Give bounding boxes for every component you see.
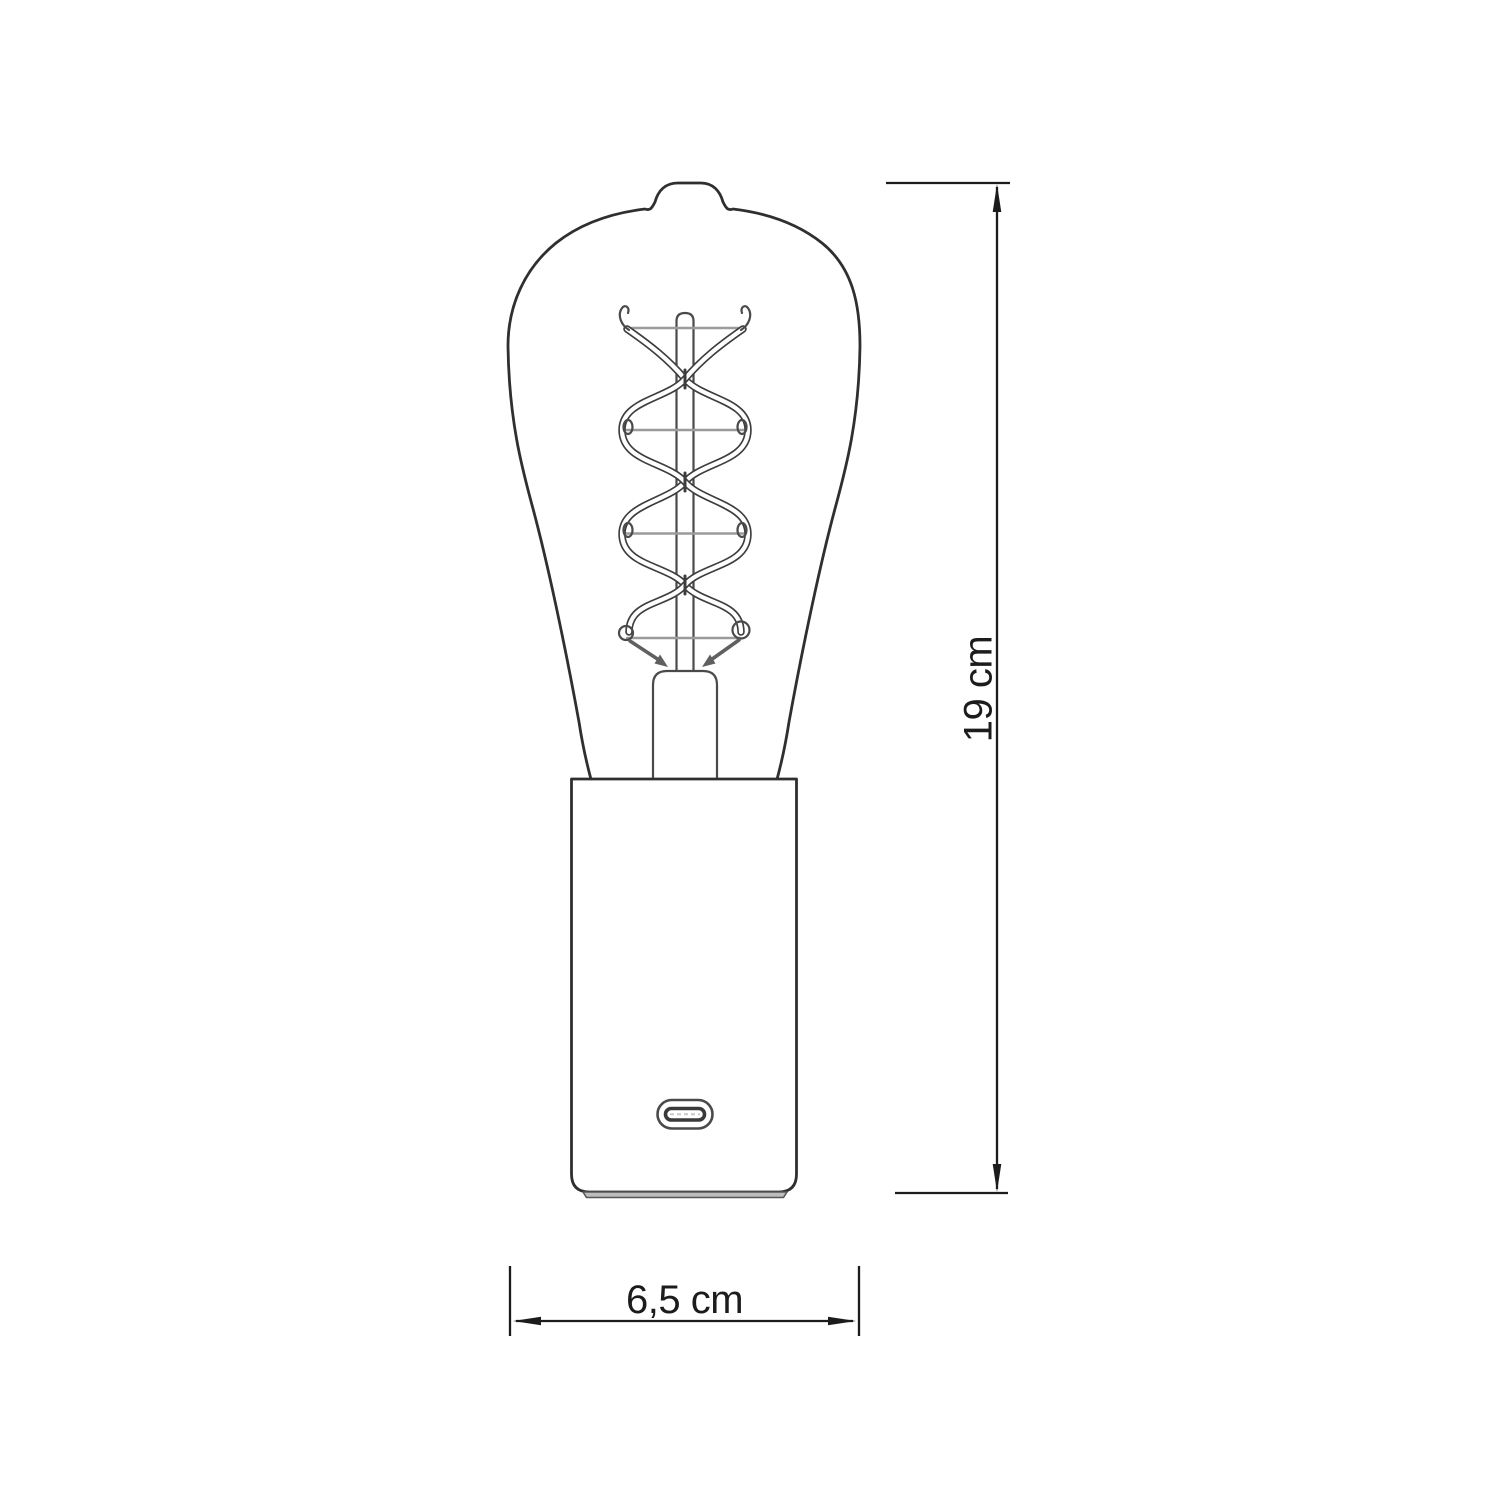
height-dimension-label: 19 cm [957,636,1001,742]
width-arrow-right [828,1317,856,1326]
filament-assembly [619,306,750,672]
lead-wire-left [630,641,662,662]
width-arrow-left [513,1317,541,1326]
height-arrow-down [993,1164,1002,1192]
dimension-diagram: 19 cm 6,5 cm [0,0,1500,1500]
diagram-canvas: 19 cm 6,5 cm [0,0,1500,1500]
lamp-base [572,779,797,1198]
lead-wire-right [708,640,739,662]
base-body [572,779,797,1192]
usb-c-port [658,1100,713,1129]
height-arrow-up [993,184,1002,212]
glass-pedestal [653,671,717,783]
height-dimension: 19 cm [886,183,1010,1193]
width-dimension-label: 6,5 cm [626,1278,743,1322]
width-dimension: 6,5 cm [510,1266,859,1336]
base-foot [583,1192,787,1198]
